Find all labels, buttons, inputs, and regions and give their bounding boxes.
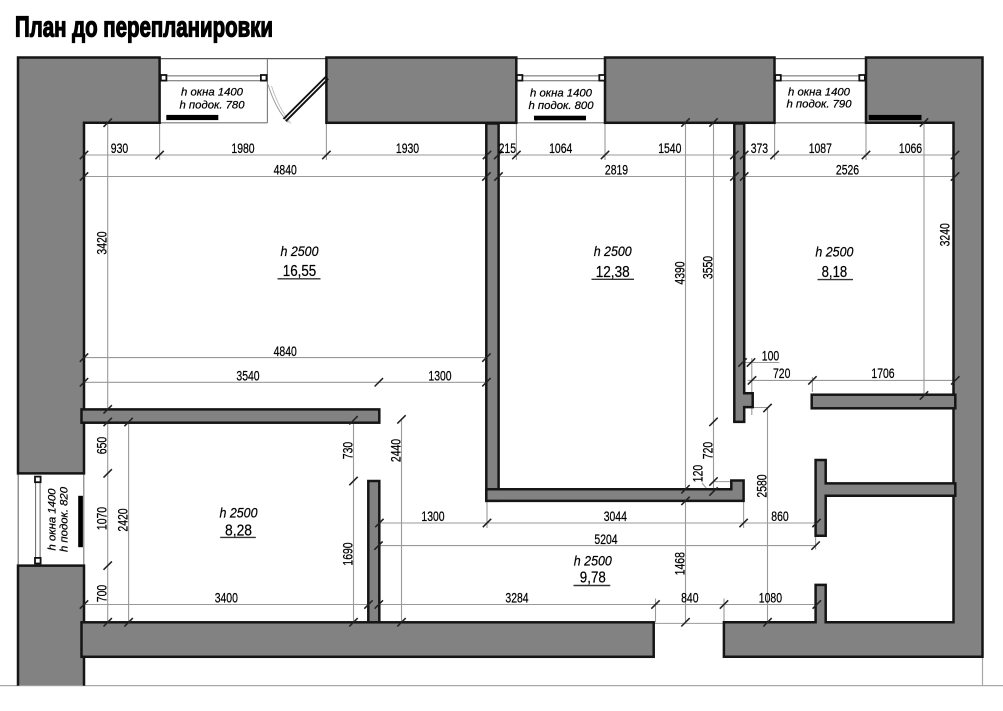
svg-text:2420: 2420 <box>116 508 132 531</box>
svg-text:100: 100 <box>762 348 779 364</box>
svg-text:930: 930 <box>111 141 128 157</box>
svg-text:1080: 1080 <box>759 591 782 607</box>
svg-text:h 2500: h 2500 <box>815 244 853 260</box>
svg-text:3420: 3420 <box>95 231 111 254</box>
svg-text:650: 650 <box>95 437 111 454</box>
svg-text:1066: 1066 <box>899 141 922 157</box>
svg-text:h окна 1400: h окна 1400 <box>47 488 59 550</box>
svg-text:1706: 1706 <box>871 366 894 382</box>
svg-text:720: 720 <box>773 366 790 382</box>
svg-text:3284: 3284 <box>505 591 528 607</box>
svg-text:h подок. 820: h подок. 820 <box>59 487 71 552</box>
svg-text:1540: 1540 <box>658 141 681 157</box>
svg-text:1468: 1468 <box>673 552 689 575</box>
svg-text:16,55: 16,55 <box>283 263 317 280</box>
svg-text:h 2500: h 2500 <box>220 506 258 522</box>
svg-text:5204: 5204 <box>594 532 617 548</box>
svg-text:План до перепланировки: План до перепланировки <box>15 11 273 43</box>
svg-text:373: 373 <box>751 141 768 157</box>
svg-text:3540: 3540 <box>236 369 259 385</box>
svg-text:h окна 1400: h окна 1400 <box>788 86 850 98</box>
svg-text:h 2500: h 2500 <box>281 244 319 260</box>
svg-text:3550: 3550 <box>701 256 717 279</box>
svg-text:1980: 1980 <box>231 141 254 157</box>
svg-text:h подок. 780: h подок. 780 <box>180 99 245 111</box>
svg-text:1300: 1300 <box>421 509 444 525</box>
svg-text:h окна 1400: h окна 1400 <box>181 87 243 99</box>
svg-text:1930: 1930 <box>396 141 419 157</box>
svg-text:1064: 1064 <box>549 141 572 157</box>
svg-text:8,18: 8,18 <box>822 264 848 281</box>
svg-text:4840: 4840 <box>274 163 297 179</box>
svg-text:215: 215 <box>499 141 516 157</box>
svg-text:9,78: 9,78 <box>580 569 606 586</box>
svg-text:840: 840 <box>681 591 698 607</box>
svg-text:4390: 4390 <box>673 261 689 284</box>
svg-text:h подок. 790: h подок. 790 <box>787 98 852 110</box>
svg-text:2819: 2819 <box>605 163 628 179</box>
svg-text:3240: 3240 <box>938 223 954 246</box>
svg-text:1690: 1690 <box>341 542 357 565</box>
svg-text:1087: 1087 <box>809 141 832 157</box>
svg-text:2580: 2580 <box>755 474 771 497</box>
svg-text:h 2500: h 2500 <box>574 554 612 570</box>
svg-text:h окна 1400: h окна 1400 <box>530 87 592 99</box>
svg-text:3400: 3400 <box>215 591 238 607</box>
svg-text:120: 120 <box>691 465 707 482</box>
svg-text:860: 860 <box>771 509 788 525</box>
svg-text:720: 720 <box>701 442 717 459</box>
svg-text:3044: 3044 <box>604 509 627 525</box>
svg-text:2440: 2440 <box>389 439 405 462</box>
svg-text:4840: 4840 <box>274 344 297 360</box>
svg-text:h 2500: h 2500 <box>594 244 632 260</box>
svg-text:12,38: 12,38 <box>596 264 630 281</box>
svg-text:1300: 1300 <box>428 369 451 385</box>
svg-text:730: 730 <box>341 442 357 459</box>
svg-text:h подок. 800: h подок. 800 <box>529 100 594 112</box>
svg-text:1070: 1070 <box>95 507 111 530</box>
svg-text:2526: 2526 <box>836 163 859 179</box>
svg-text:700: 700 <box>95 585 111 602</box>
